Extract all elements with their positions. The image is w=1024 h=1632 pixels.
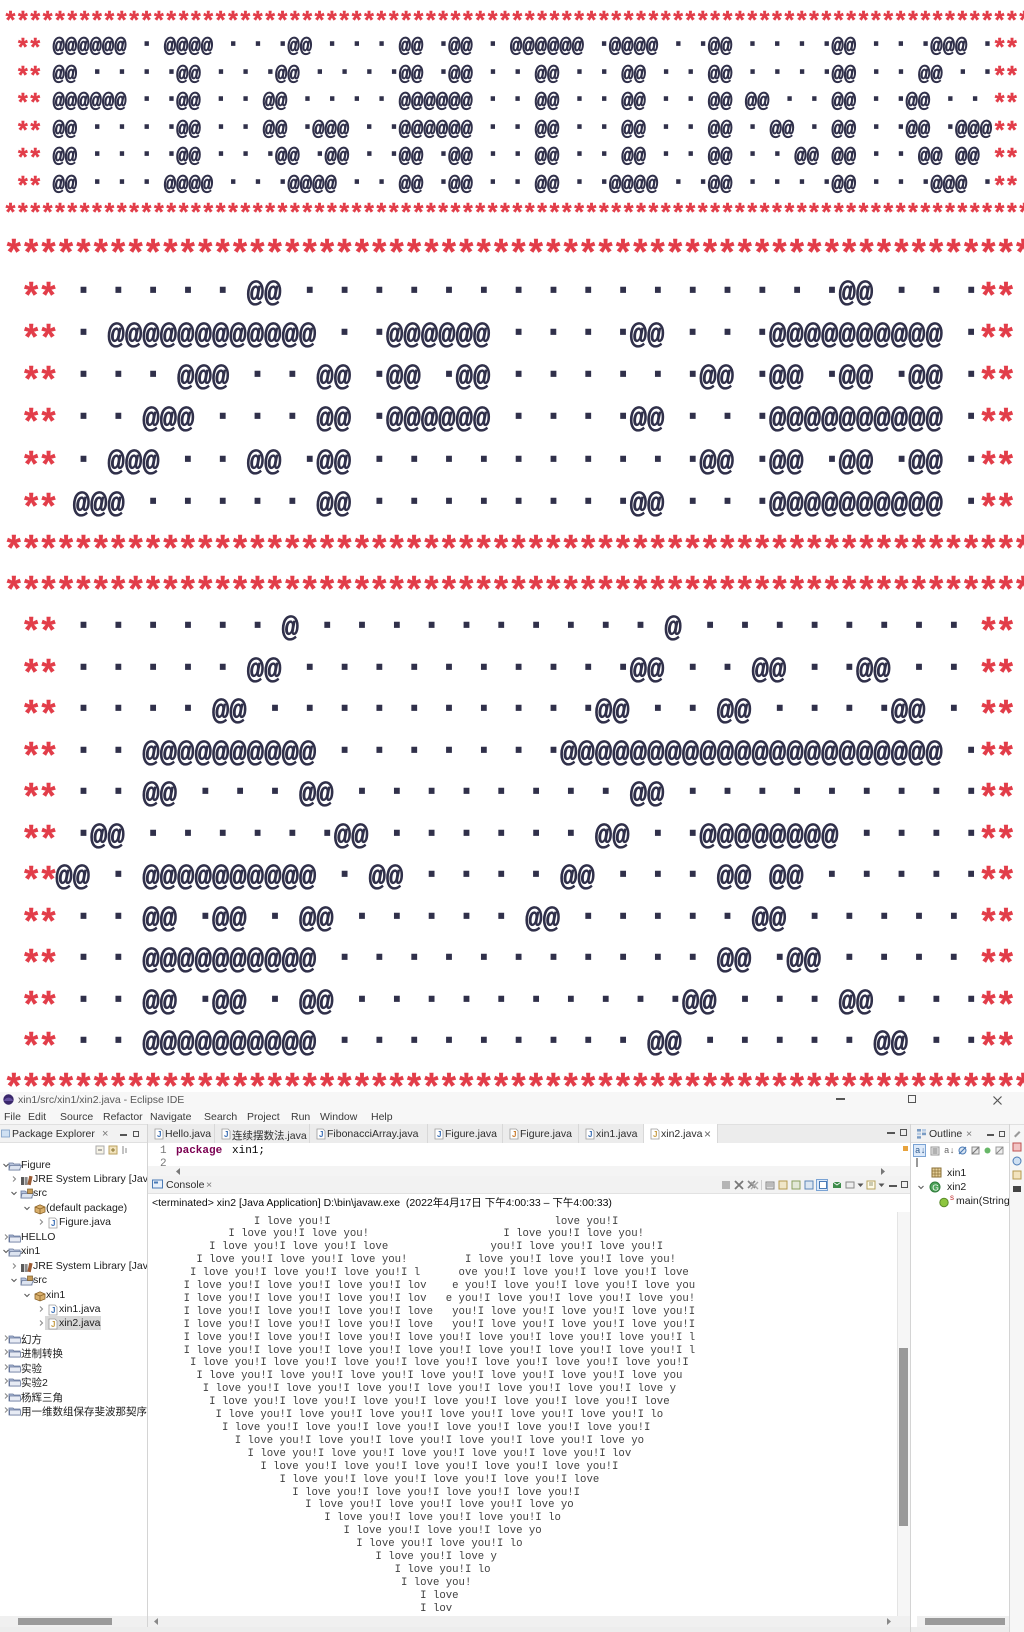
- svg-text:J: J: [653, 1130, 657, 1139]
- svg-text:G: G: [932, 1182, 939, 1192]
- svg-text:J: J: [51, 1320, 55, 1329]
- svg-text:J: J: [51, 1306, 55, 1315]
- svg-text:J: J: [588, 1130, 592, 1139]
- svg-text:J: J: [224, 1130, 228, 1139]
- svg-text:J: J: [437, 1130, 441, 1139]
- svg-text:J: J: [51, 1219, 55, 1228]
- svg-text:J: J: [319, 1130, 323, 1139]
- svg-text:J: J: [157, 1130, 161, 1139]
- svg-text:J: J: [512, 1130, 516, 1139]
